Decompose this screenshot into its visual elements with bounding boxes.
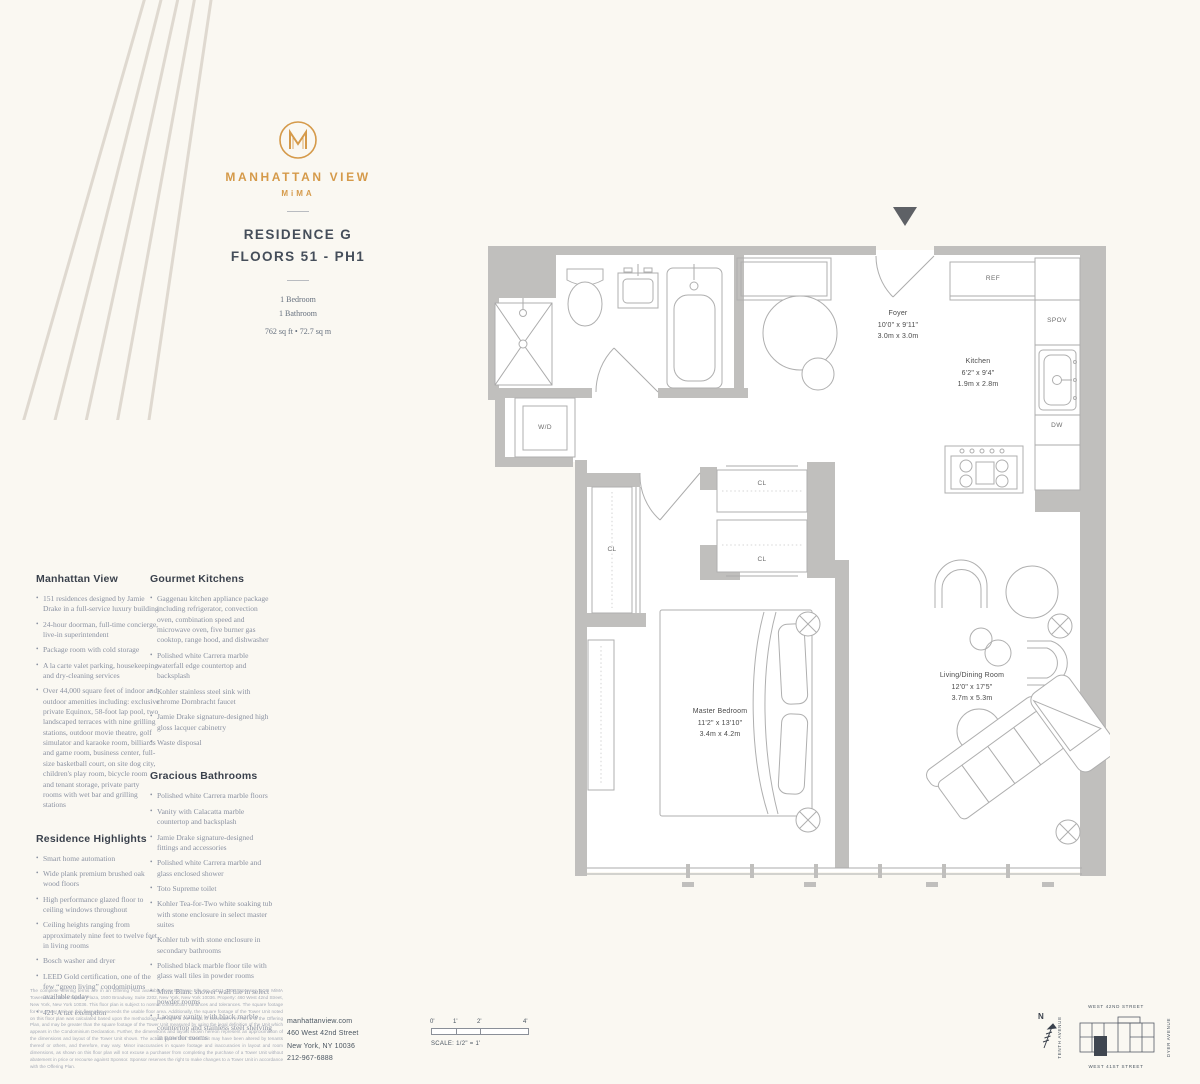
closet-lower: [717, 520, 807, 576]
title-block: MANHATTAN VIEW MiMA RESIDENCE G FLOORS 5…: [186, 120, 410, 336]
floor-plan-drawing: [486, 200, 1110, 900]
room-label-kitchen: Kitchen 6'2" x 9'4" 1.9m x 2.8m: [918, 356, 1038, 391]
shower-fixture: [495, 298, 552, 385]
bullet-list: Gaggenau kitchen appliance package inclu…: [150, 594, 274, 748]
label-refrigerator: REF: [963, 275, 1023, 282]
bullet-item: Kohler Tea-for-Two white soaking tub wit…: [150, 899, 274, 930]
brand-name: MANHATTAN VIEW: [186, 170, 410, 184]
entry-marker-icon: [893, 207, 917, 226]
section-heading: Manhattan View: [36, 573, 160, 585]
label-closet: CL: [732, 480, 792, 487]
unit-area: 762 sq ft • 72.7 sq m: [186, 327, 410, 336]
website: manhattanview.com: [287, 1016, 359, 1028]
room-dim-imperial: 11'2" x 13'10": [660, 718, 780, 729]
bullet-item: Jamie Drake signature-designed high glos…: [150, 712, 274, 733]
room-dim-imperial: 6'2" x 9'4": [918, 368, 1038, 379]
scale-note: SCALE: 1/2" = 1': [431, 1041, 531, 1047]
bullet-item: Jamie Drake signature-designed fittings …: [150, 833, 274, 854]
map-building-footprint: [1078, 1014, 1158, 1060]
feature-column-left: Manhattan View 151 residences designed b…: [36, 573, 160, 1040]
bullet-item: Bosch washer and dryer: [36, 956, 160, 966]
room-dim-imperial: 12'0" x 17'5": [897, 682, 1047, 693]
room-name: Master Bedroom: [660, 706, 780, 717]
sink-fixture: [618, 264, 658, 308]
floorplan-page: { "brand": { "name": "MANHATTAN VIEW", "…: [0, 0, 1200, 1084]
scale-bar-graphic: [431, 1028, 529, 1035]
bullet-item: Polished black marble floor tile with gl…: [150, 961, 274, 982]
map-unit-marker: [1094, 1036, 1107, 1056]
room-label-master-bedroom: Master Bedroom 11'2" x 13'10" 3.4m x 4.2…: [660, 706, 780, 741]
room-dim-imperial: 10'0" x 9'11": [838, 320, 958, 331]
bullet-item: Polished white Carrera marble waterfall …: [150, 651, 274, 682]
bullet-item: Kohler stainless steel sink with chrome …: [150, 687, 274, 708]
room-name: Foyer: [838, 308, 958, 319]
bullet-list: 151 residences designed by Jamie Drake i…: [36, 594, 160, 811]
room-label-living-dining: Living/Dining Room 12'0" x 17'5" 3.7m x …: [897, 670, 1047, 705]
bullet-item: Ceiling heights ranging from approximate…: [36, 920, 160, 951]
divider: [287, 280, 309, 281]
scale-tick: 2': [477, 1019, 481, 1025]
room-label-foyer: Foyer 10'0" x 9'11" 3.0m x 3.0m: [838, 308, 958, 343]
bullet-item: Kohler tub with stone enclosure in secon…: [150, 935, 274, 956]
bullet-item: High performance glazed floor to ceiling…: [36, 895, 160, 916]
address-line-1: 460 West 42nd Street: [287, 1028, 359, 1040]
brand-subname: MiMA: [186, 189, 410, 198]
room-dim-metric: 3.0m x 3.0m: [838, 331, 958, 342]
floor-plan: Foyer 10'0" x 9'11" 3.0m x 3.0m Kitchen …: [486, 200, 1110, 900]
section-manhattan-view: Manhattan View 151 residences designed b…: [36, 573, 160, 811]
room-dim-metric: 3.7m x 5.3m: [897, 693, 1047, 704]
phone-number: 212-967-6888: [287, 1053, 359, 1065]
room-name: Living/Dining Room: [897, 670, 1047, 681]
dresser-furniture: [588, 640, 614, 790]
bullet-item: Smart home automation: [36, 854, 160, 864]
section-gourmet-kitchens: Gourmet Kitchens Gaggenau kitchen applia…: [150, 573, 274, 748]
bullet-item: A la carte valet parking, housekeeping a…: [36, 661, 160, 682]
bullet-item: Wide plank premium brushed oak wood floo…: [36, 869, 160, 890]
bathroom-count: 1 Bathroom: [186, 307, 410, 321]
scale-tick: 4': [523, 1019, 527, 1025]
label-dishwasher: DW: [1027, 422, 1087, 429]
room-dim-metric: 3.4m x 4.2m: [660, 729, 780, 740]
section-heading: Gracious Bathrooms: [150, 770, 274, 782]
divider: [287, 211, 309, 212]
armchair-top: [935, 560, 987, 608]
label-closet: CL: [582, 546, 642, 553]
section-heading: Gourmet Kitchens: [150, 573, 274, 585]
toilet-fixture: [567, 269, 603, 326]
bullet-item: 24-hour doorman, full-time concierge, li…: [36, 620, 160, 641]
map-avenue-right: DYER AVENUE: [1166, 1018, 1171, 1057]
label-speed-oven: SPOV: [1027, 317, 1087, 324]
bullet-item: 151 residences designed by Jamie Drake i…: [36, 594, 160, 615]
scale-tick: 1': [453, 1019, 457, 1025]
map-street-bottom: WEST 41ST STREET: [1056, 1064, 1176, 1069]
contact-block: manhattanview.com 460 West 42nd Street N…: [287, 1016, 359, 1065]
room-name: Kitchen: [918, 356, 1038, 367]
room-dim-metric: 1.9m x 2.8m: [918, 379, 1038, 390]
scale-tick-labels: 0' 1' 2' 4': [431, 1019, 531, 1028]
section-heading: Residence Highlights: [36, 833, 160, 845]
bullet-item: Polished white Carrera marble floors: [150, 791, 274, 801]
bullet-item: Polished white Carrera marble and glass …: [150, 858, 274, 879]
bullet-item: Package room with cold storage: [36, 645, 160, 655]
bathtub-fixture: [667, 264, 722, 388]
map-avenue-left: TENTH AVENUE: [1057, 1016, 1062, 1059]
label-washer-dryer: W/D: [515, 424, 575, 431]
bullet-item: Over 44,000 square feet of indoor and ou…: [36, 686, 160, 810]
legal-disclaimer: The complete offering terms are in an Of…: [30, 988, 283, 1071]
round-table-top: [1006, 566, 1058, 618]
bullet-item: Waste disposal: [150, 738, 274, 748]
bedroom-count: 1 Bedroom: [186, 293, 410, 307]
label-closet: CL: [732, 556, 792, 563]
bullet-item: Vanity with Calacatta marble countertop …: [150, 807, 274, 828]
address-line-2: New York, NY 10036: [287, 1041, 359, 1053]
residence-name: RESIDENCE G: [186, 224, 410, 246]
location-map: N WEST 42ND STREET WEST 41ST STREET TENT…: [1030, 1000, 1200, 1084]
scale-bar: 0' 1' 2' 4' SCALE: 1/2" = 1': [431, 1019, 531, 1047]
residence-floors: FLOORS 51 - PH1: [186, 246, 410, 268]
unit-facts: 1 Bedroom 1 Bathroom: [186, 293, 410, 321]
scale-tick: 0': [430, 1019, 434, 1025]
map-street-top: WEST 42ND STREET: [1056, 1004, 1176, 1009]
bullet-item: Toto Supreme toilet: [150, 884, 274, 894]
kitchen-sink-fixture: [1039, 350, 1077, 410]
closet-upper: [717, 466, 807, 512]
bullet-item: Gaggenau kitchen appliance package inclu…: [150, 594, 274, 646]
brand-logo-icon: [278, 120, 318, 160]
residence-title: RESIDENCE G FLOORS 51 - PH1: [186, 224, 410, 267]
